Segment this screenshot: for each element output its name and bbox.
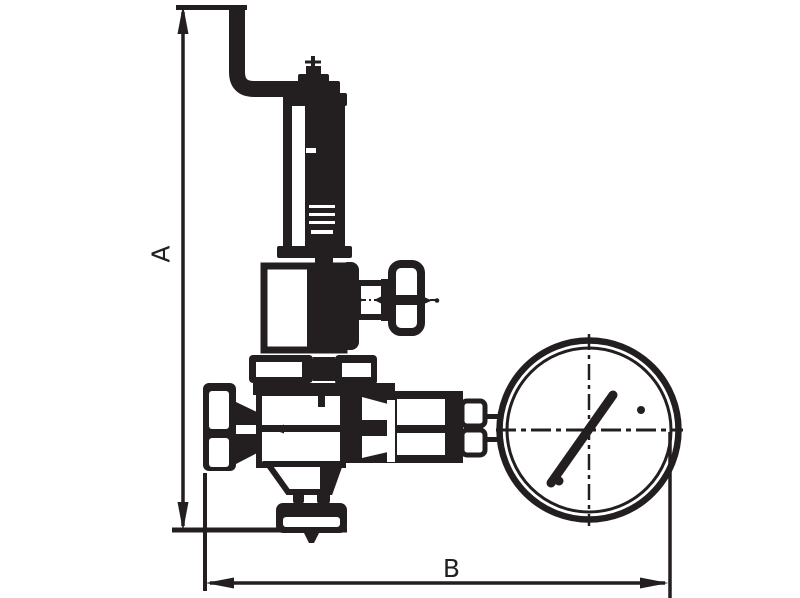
pressure-gauge: [496, 334, 683, 526]
dimension-b-label: B: [443, 554, 460, 583]
valve-dimension-drawing: A B: [0, 0, 800, 598]
gauge-needle-pivot-dot: [555, 477, 564, 486]
dimension-a-label: A: [147, 245, 176, 262]
inlet-flange: [203, 383, 259, 471]
handwheel: [392, 264, 421, 332]
valve-body: [259, 393, 352, 492]
dimension-a-arrow-down: [178, 502, 189, 531]
dimension-b-arrow-right: [640, 578, 669, 589]
inlet-pipe: [237, 7, 295, 89]
drawing-canvas: A B: [0, 0, 800, 598]
outlet-union: [343, 391, 503, 463]
gauge-max-pointer-dot: [637, 406, 645, 414]
side-tap: [346, 264, 439, 332]
spring-bonnet: [277, 104, 352, 266]
valve-assembly: [203, 7, 683, 543]
bonnet-flange: [249, 355, 395, 395]
dimension-b-arrow-left: [206, 578, 235, 589]
bottom-outlet-flange: [276, 490, 347, 543]
upper-body: [264, 262, 359, 352]
